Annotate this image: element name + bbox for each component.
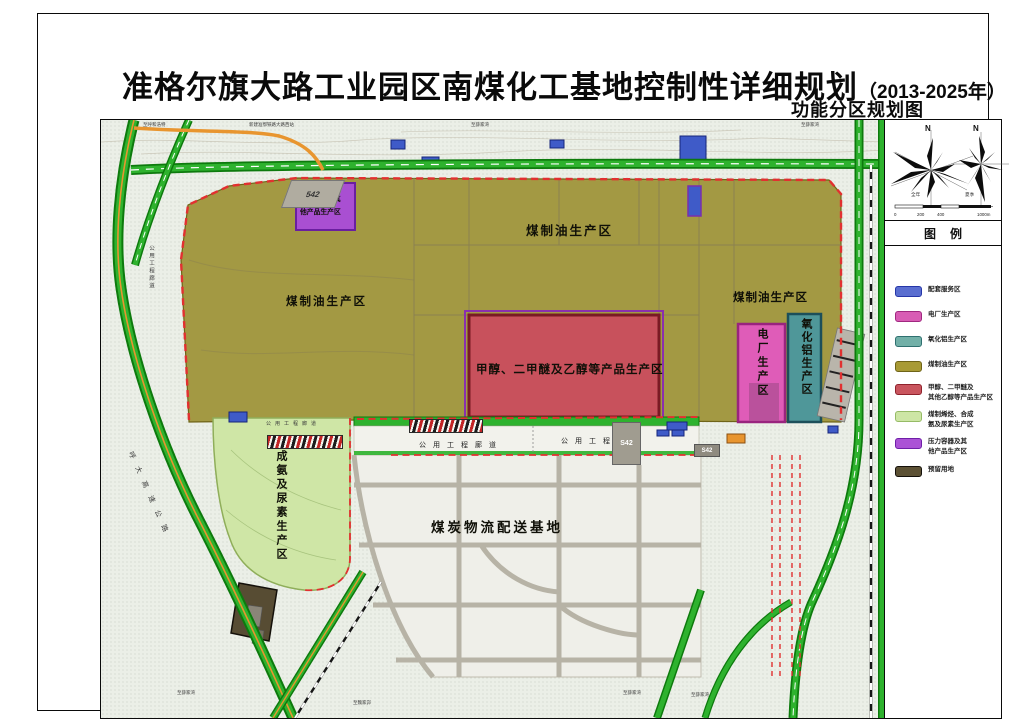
direction-label: 至薛家湾: [177, 690, 195, 696]
scale-tick: 0: [894, 212, 896, 217]
legend-item-service: 配套服务区: [895, 285, 961, 297]
legend-label: 电厂生产区: [928, 310, 961, 320]
legend-label2: 其他乙醇等产品生产区: [928, 393, 993, 403]
legend-swatch: [895, 411, 922, 422]
pressure-vessel-line2: 他产品生产区: [300, 207, 341, 220]
legend-swatch: [895, 336, 922, 347]
direction-label: 至呼和浩特: [143, 122, 166, 128]
planning-sheet: { "title": { "main": "准格尔旗大路工业园区南煤化工基地控制…: [0, 0, 1024, 723]
zone-label-ammonia-urea: 合成氨及尿素生产区: [273, 436, 289, 556]
legend-swatch: [895, 361, 922, 372]
legend-swatch: [895, 384, 922, 395]
legend-swatch: [895, 286, 922, 297]
legend-label: 压力容器及其: [928, 437, 967, 447]
corridor-arrow-band: [409, 419, 483, 433]
legend-item-power: 电厂生产区: [895, 310, 961, 322]
corridor-label-vertical: 公用工程廊道: [147, 245, 155, 311]
scale-tick: 200: [917, 212, 924, 217]
utility-corridor: [354, 417, 699, 455]
zone-label-alumina: 氧化铝生产区: [798, 318, 814, 420]
scale-tick: 400: [937, 212, 944, 217]
legend-item-alumina: 氧化铝生产区: [895, 335, 967, 347]
corridor-label: 公用工程廊道: [419, 440, 503, 450]
scale-bar: [893, 200, 995, 212]
legend-label2: 氨及尿素生产区: [928, 420, 974, 430]
road-sign-542: 542: [281, 180, 345, 208]
road-sign-s42-lower-text: S42: [702, 448, 713, 454]
direction-label: 新建准鄂铁路大路西站: [249, 122, 294, 128]
legend-label2: 他产品生产区: [928, 447, 967, 457]
legend-item-coal-oil: 煤制油生产区: [895, 360, 967, 372]
legend-label: 配套服务区: [928, 285, 961, 295]
legend-label: 氧化铝生产区: [928, 335, 967, 345]
zone-label-methanol: 甲醇、二甲醚及乙醇等产品生产区: [476, 361, 664, 377]
service-marker-tall: [688, 186, 701, 216]
page-title-text: 准格尔旗大路工业园区南煤化工基地控制性详细规划: [122, 70, 858, 105]
road-sign-542-text: 542: [305, 190, 322, 199]
road-sign-s42-lower: S42: [694, 444, 720, 457]
wind-rose-summer-icon: [951, 130, 1011, 208]
sheet-frame: 准格尔旗大路工业园区南煤化工基地控制性详细规划（2013-2025年） 功能分区…: [37, 13, 989, 711]
road-sign-s42: S42: [612, 422, 641, 465]
zone-label-coal-logistics: 煤炭物流配送基地: [431, 516, 563, 536]
legend-item-pressure: 压力容器及其他产品生产区: [895, 437, 967, 457]
zoning-map: 煤制油生产区 煤制油生产区 煤制油生产区 甲醇、二甲醚及乙醇等产品生产区 电厂生…: [101, 120, 884, 718]
zone-label-coal-oil-top: 煤制油生产区: [526, 220, 613, 239]
direction-label: 至薛家湾: [471, 122, 489, 128]
road-sign-s42-text: S42: [620, 440, 632, 447]
legend-panel: N N 全年: [884, 120, 1001, 718]
zone-label-coal-oil-left: 煤制油生产区: [286, 293, 367, 309]
legend-label: 甲醇、二甲醚及: [928, 383, 993, 393]
corridor-arrow-band: [267, 435, 343, 449]
legend-swatch: [895, 438, 922, 449]
zone-coal-logistics: [354, 455, 701, 677]
legend-label: 煤制烯烃、合成: [928, 410, 974, 420]
legend-label: 煤制油生产区: [928, 360, 967, 370]
legend-label: 预留用地: [928, 465, 954, 475]
rose-caption-annual: 全年: [911, 192, 920, 198]
direction-label: 至魏家峁: [353, 700, 371, 706]
legend-item-olefin-ammonia: 煤制烯烃、合成氨及尿素生产区: [895, 410, 974, 430]
direction-label: 至薛家湾: [623, 690, 641, 696]
legend-swatch: [895, 311, 922, 322]
zone-label-power-plant: 电厂生产区: [754, 328, 770, 420]
zone-label-coal-oil-right: 煤制油生产区: [733, 289, 808, 305]
orange-marker: [727, 434, 745, 443]
direction-label: 至薛家湾: [801, 122, 819, 128]
scale-tick: 1000m: [977, 212, 990, 217]
corridor-label-small: 公用工程廊道: [266, 420, 320, 427]
legend-swatch: [895, 466, 922, 477]
rose-caption-summer: 夏季: [965, 192, 974, 198]
legend-header: 图例: [885, 220, 1001, 246]
legend-item-methanol: 甲醇、二甲醚及其他乙醇等产品生产区: [895, 383, 993, 403]
legend-item-reserved: 预留用地: [895, 465, 954, 477]
sheet-content: 煤制油生产区 煤制油生产区 煤制油生产区 甲醇、二甲醚及乙醇等产品生产区 电厂生…: [100, 119, 1002, 719]
direction-label: 至薛家湾: [691, 692, 709, 698]
